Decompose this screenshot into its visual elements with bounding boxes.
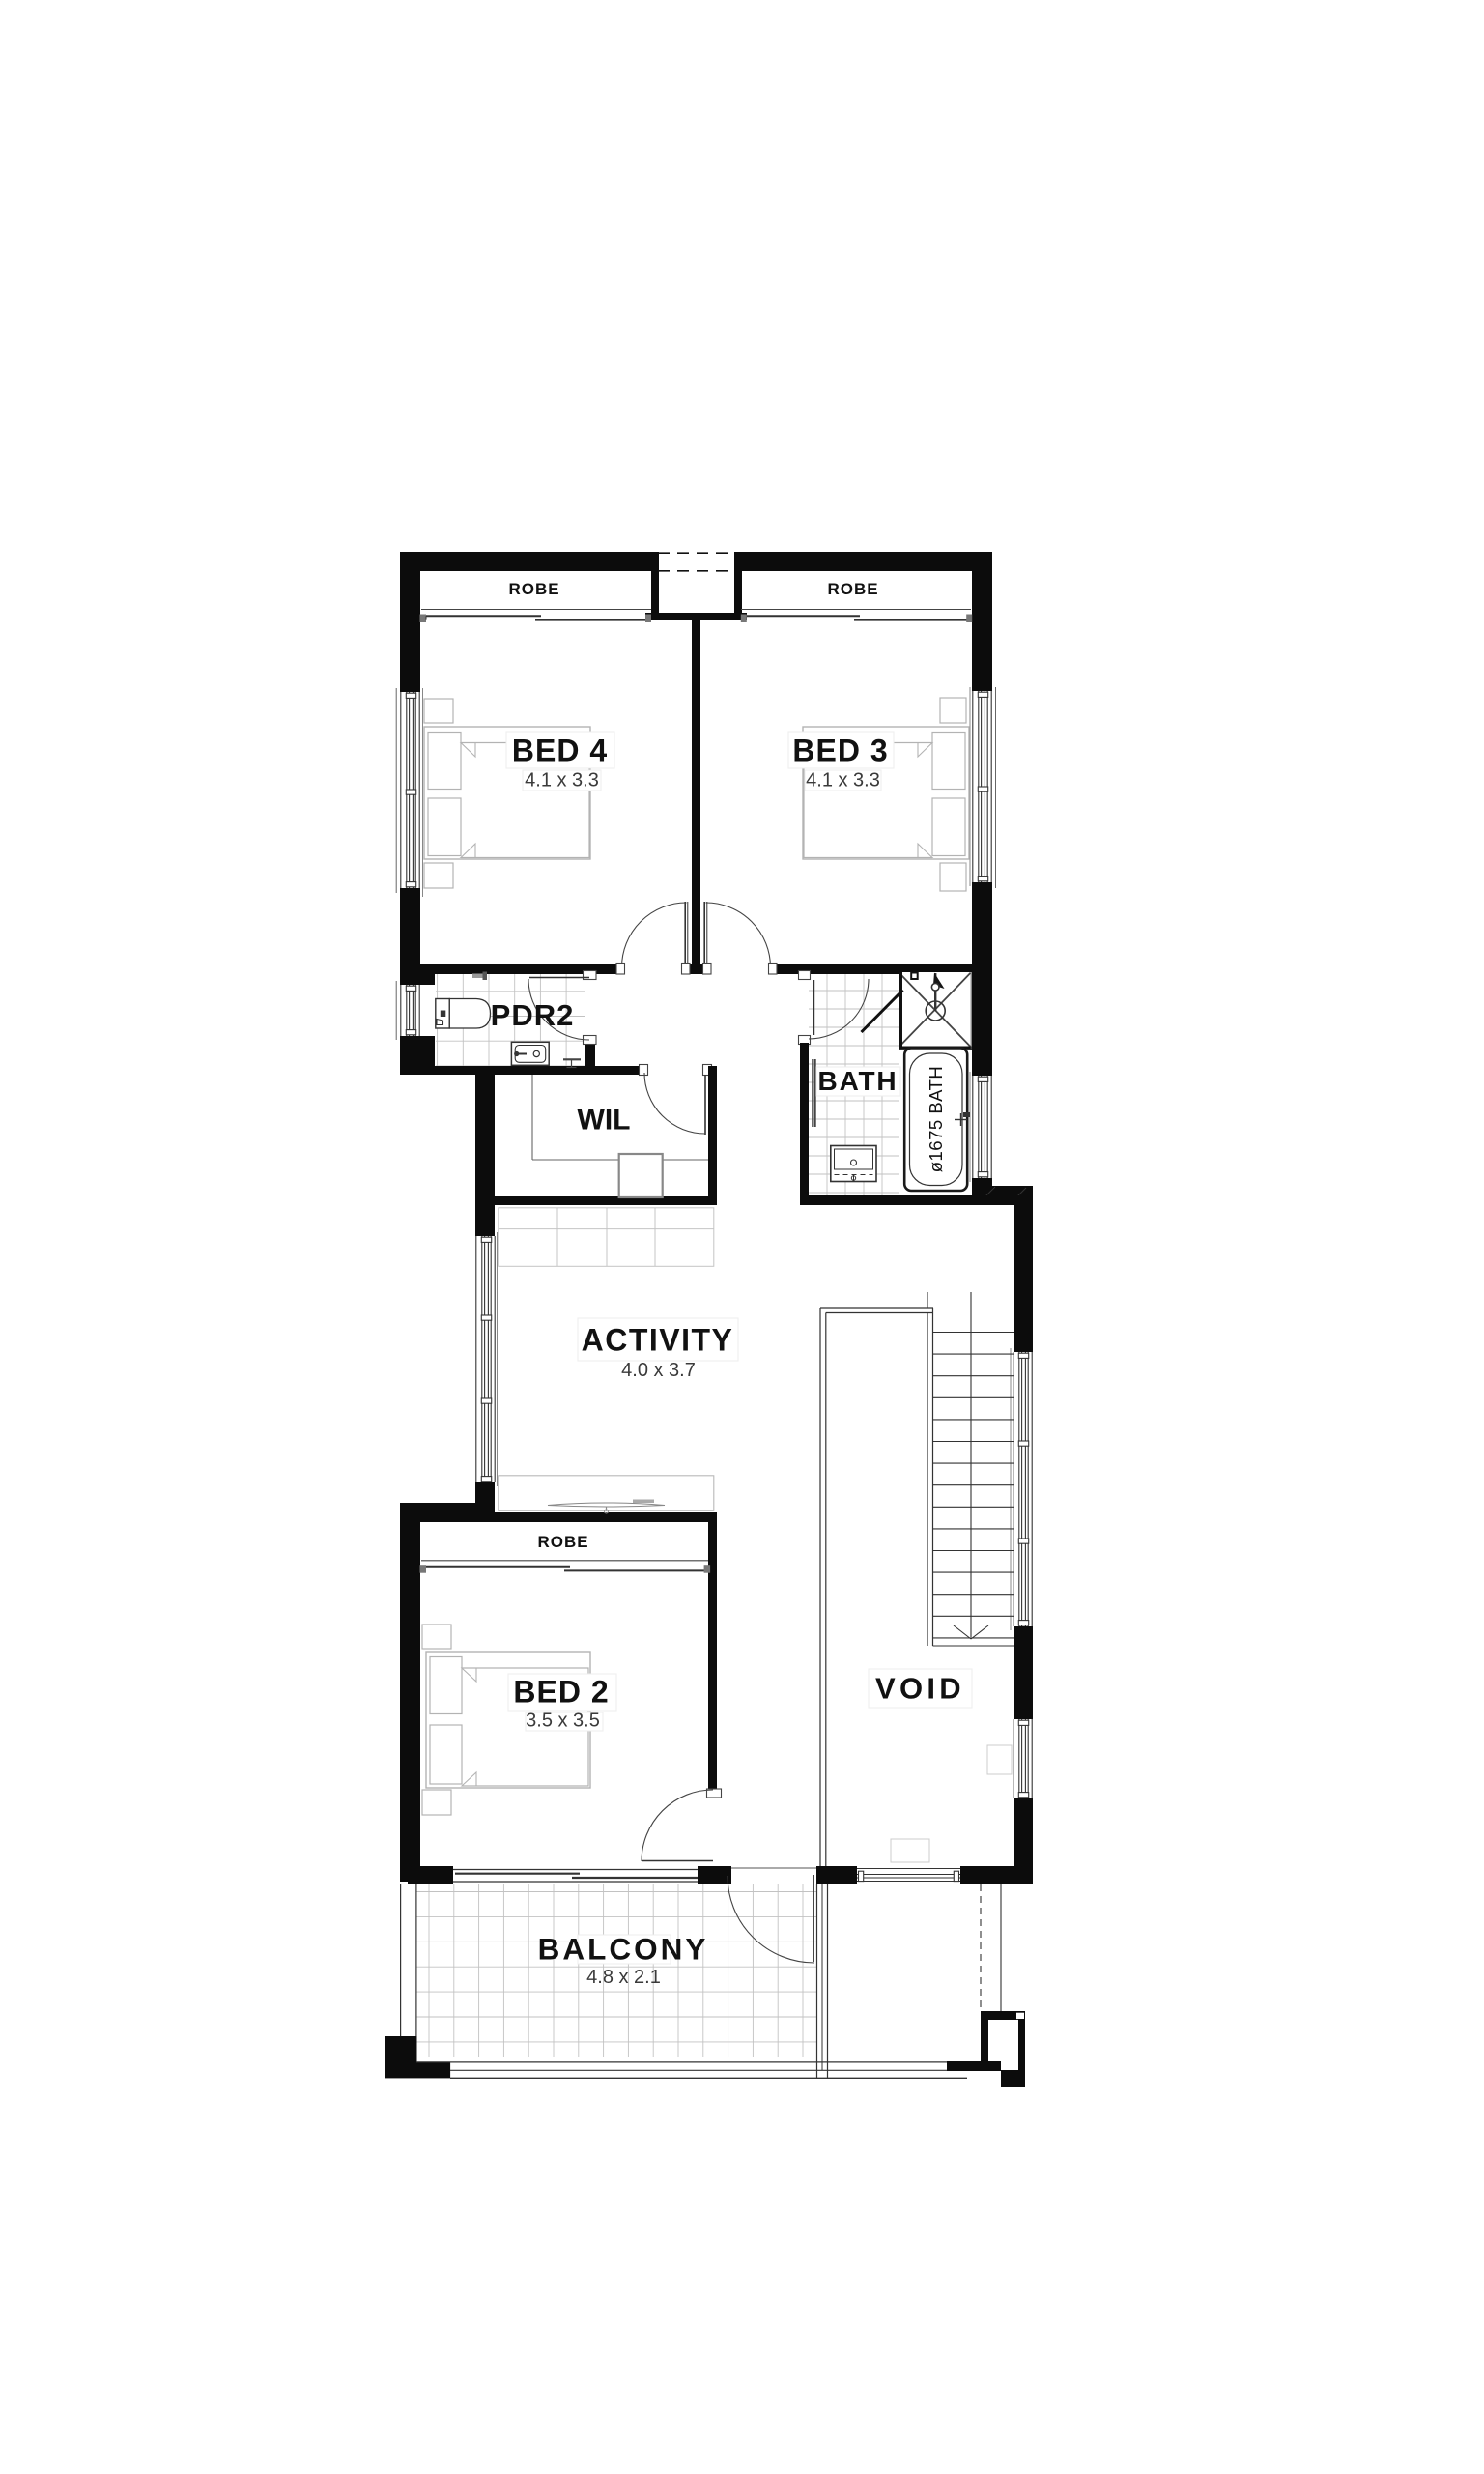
svg-text:BATH: BATH [818, 1066, 899, 1096]
svg-text:4.1 x 3.3: 4.1 x 3.3 [525, 770, 599, 791]
svg-text:3.5 x 3.5: 3.5 x 3.5 [526, 1711, 600, 1732]
svg-text:4.0 x 3.7: 4.0 x 3.7 [621, 1360, 696, 1381]
svg-text:VOID: VOID [875, 1672, 965, 1706]
svg-text:BED 2: BED 2 [513, 1675, 609, 1710]
svg-text:BALCONY: BALCONY [538, 1932, 709, 1967]
svg-text:BED 4: BED 4 [512, 734, 608, 768]
svg-text:ROBE: ROBE [827, 580, 878, 598]
svg-text:4.1 x 3.3: 4.1 x 3.3 [806, 770, 880, 791]
svg-text:PDR2: PDR2 [491, 998, 575, 1032]
svg-text:ROBE: ROBE [508, 580, 559, 598]
svg-text:ø1675 BATH: ø1675 BATH [926, 1066, 946, 1173]
svg-text:WIL: WIL [578, 1105, 631, 1136]
svg-text:ROBE: ROBE [537, 1533, 588, 1551]
svg-text:BED 3: BED 3 [792, 734, 888, 768]
svg-text:ACTIVITY: ACTIVITY [582, 1323, 734, 1358]
svg-text:4.8 x 2.1: 4.8 x 2.1 [586, 1967, 661, 1988]
